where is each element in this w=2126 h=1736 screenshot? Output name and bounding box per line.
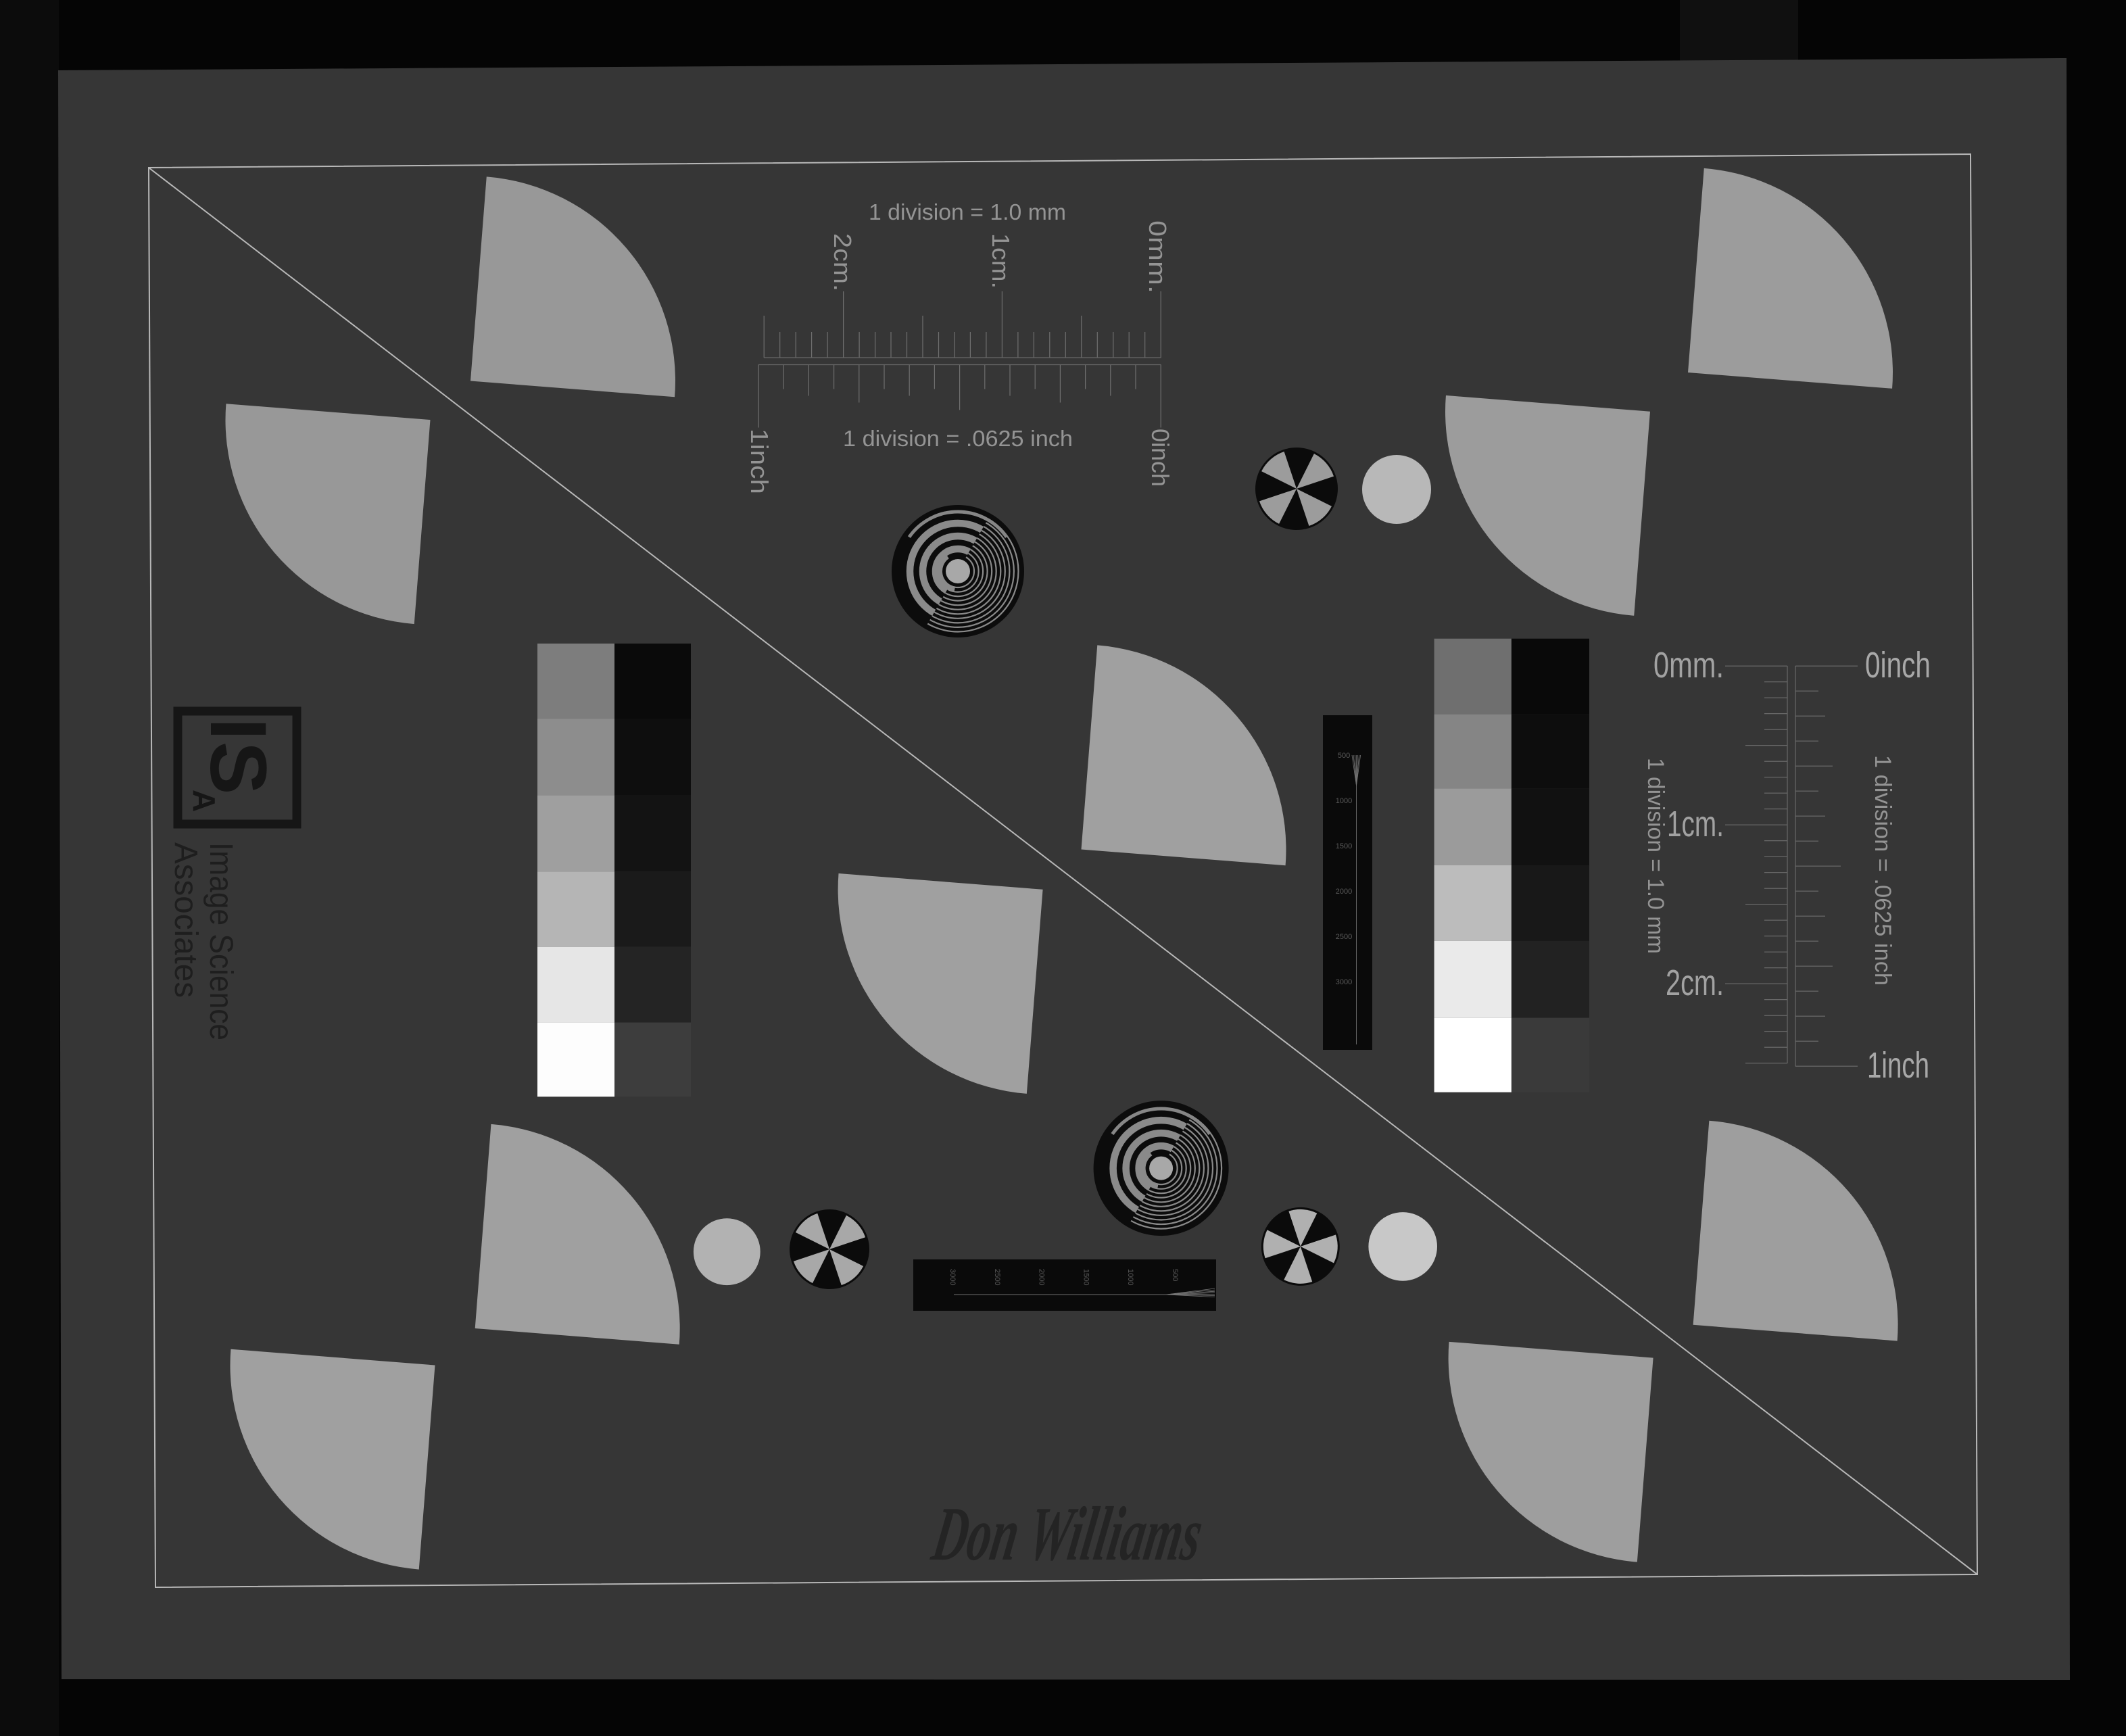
svg-text:0mm.: 0mm.: [1653, 645, 1724, 685]
svg-text:1500: 1500: [1082, 1269, 1090, 1285]
svg-text:2000: 2000: [1038, 1269, 1046, 1285]
svg-text:0inch: 0inch: [1146, 429, 1174, 487]
svg-text:2000: 2000: [1336, 888, 1352, 896]
svg-text:1inch: 1inch: [1867, 1045, 1929, 1086]
svg-text:2cm.: 2cm.: [1666, 963, 1724, 1003]
svg-text:1 division = 1.0 mm: 1 division = 1.0 mm: [1643, 758, 1668, 954]
svg-text:2500: 2500: [993, 1269, 1001, 1285]
svg-text:Associates: Associates: [168, 842, 203, 998]
svg-text:1000: 1000: [1336, 797, 1352, 805]
svg-text:A: A: [187, 790, 222, 812]
svg-text:1cm.: 1cm.: [1667, 804, 1724, 844]
svg-text:500: 500: [1338, 752, 1350, 760]
svg-text:1 division = .0625 inch: 1 division = .0625 inch: [1870, 755, 1895, 986]
svg-text:2500: 2500: [1336, 933, 1352, 941]
svg-text:1 division = .0625 inch: 1 division = .0625 inch: [843, 426, 1073, 451]
svg-text:0mm.: 0mm.: [1144, 220, 1171, 293]
svg-text:3000: 3000: [948, 1269, 957, 1285]
svg-text:Don Williams: Don Williams: [927, 1491, 1209, 1576]
svg-text:IS: IS: [193, 718, 283, 796]
svg-text:1cm.: 1cm.: [987, 233, 1015, 289]
svg-text:2cm.: 2cm.: [829, 233, 856, 291]
svg-text:1 division = 1.0 mm: 1 division = 1.0 mm: [869, 199, 1066, 224]
svg-text:Image Science: Image Science: [203, 842, 239, 1040]
svg-text:3000: 3000: [1336, 978, 1352, 986]
svg-text:500: 500: [1171, 1269, 1179, 1281]
svg-text:1inch: 1inch: [746, 429, 773, 494]
svg-text:0inch: 0inch: [1865, 645, 1931, 685]
svg-text:1000: 1000: [1126, 1269, 1134, 1285]
svg-text:1500: 1500: [1336, 842, 1352, 850]
